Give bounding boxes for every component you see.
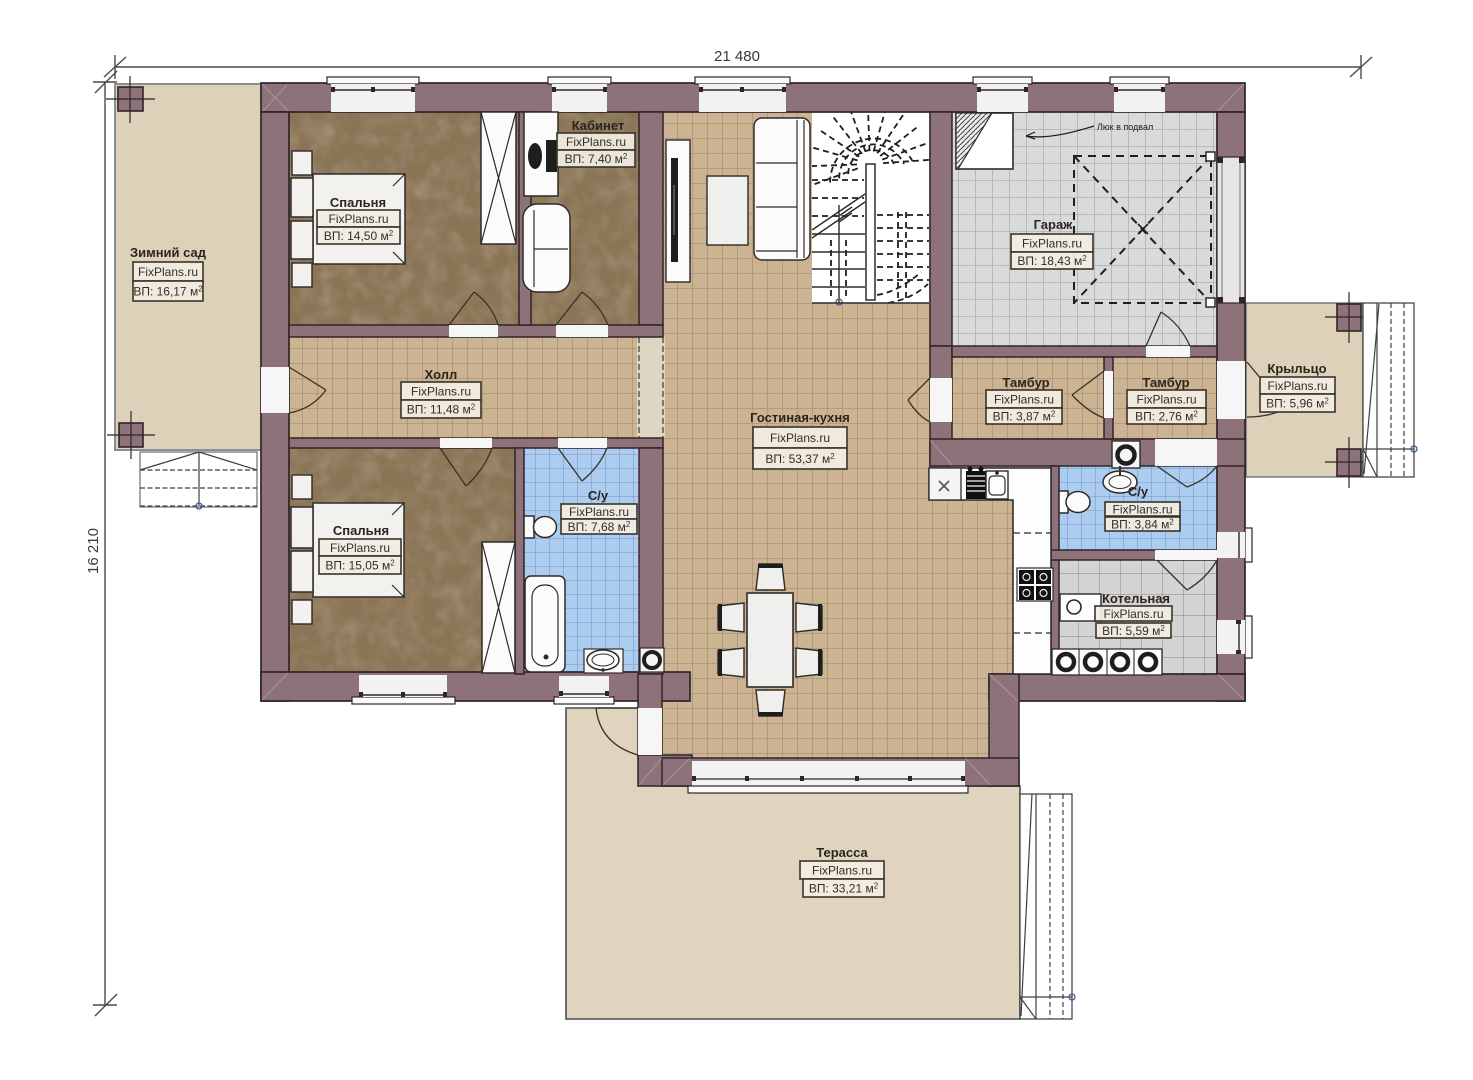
svg-text:ВП: 53,37 м2: ВП: 53,37 м2 [765, 452, 835, 466]
svg-text:ВП: 7,40 м2: ВП: 7,40 м2 [565, 152, 628, 166]
svg-text:ВП: 14,50 м2: ВП: 14,50 м2 [324, 229, 394, 243]
svg-text:Холл: Холл [425, 367, 458, 382]
svg-text:Гостиная-кухня: Гостиная-кухня [750, 410, 850, 425]
svg-text:ВП: 18,43 м2: ВП: 18,43 м2 [1017, 254, 1087, 268]
svg-text:ВП: 16,17 м2: ВП: 16,17 м2 [133, 285, 203, 299]
svg-text:Люк в подвал: Люк в подвал [1097, 122, 1153, 132]
svg-text:21 480: 21 480 [714, 48, 760, 65]
svg-text:FixPlans.ru: FixPlans.ru [1022, 237, 1082, 251]
svg-text:Спальня: Спальня [330, 195, 386, 210]
svg-text:ВП: 3,87 м2: ВП: 3,87 м2 [993, 410, 1056, 424]
svg-text:ВП: 5,96 м2: ВП: 5,96 м2 [1266, 397, 1329, 411]
svg-text:С/у: С/у [1128, 484, 1149, 499]
svg-text:ВП: 3,84 м2: ВП: 3,84 м2 [1111, 518, 1174, 532]
svg-text:Крыльцо: Крыльцо [1267, 361, 1326, 376]
svg-text:Котельная: Котельная [1102, 591, 1170, 606]
svg-text:FixPlans.ru: FixPlans.ru [1112, 503, 1172, 517]
svg-text:Терасса: Терасса [816, 845, 868, 860]
svg-text:FixPlans.ru: FixPlans.ru [994, 393, 1054, 407]
svg-text:FixPlans.ru: FixPlans.ru [1136, 393, 1196, 407]
svg-text:16 210: 16 210 [85, 528, 102, 574]
svg-text:Гараж: Гараж [1034, 217, 1074, 232]
svg-text:FixPlans.ru: FixPlans.ru [138, 265, 198, 279]
svg-text:Зимний сад: Зимний сад [130, 245, 207, 260]
svg-text:ВП: 33,21 м2: ВП: 33,21 м2 [809, 882, 879, 896]
svg-text:FixPlans.ru: FixPlans.ru [770, 431, 830, 445]
svg-text:Тамбур: Тамбур [1002, 375, 1049, 390]
svg-text:Спальня: Спальня [333, 523, 389, 538]
svg-text:FixPlans.ru: FixPlans.ru [1103, 607, 1163, 621]
svg-text:FixPlans.ru: FixPlans.ru [328, 212, 388, 226]
svg-text:С/у: С/у [588, 488, 609, 503]
svg-text:Кабинет: Кабинет [572, 118, 625, 133]
svg-text:Тамбур: Тамбур [1142, 375, 1189, 390]
svg-text:FixPlans.ru: FixPlans.ru [812, 864, 872, 878]
svg-text:FixPlans.ru: FixPlans.ru [569, 505, 629, 519]
svg-text:FixPlans.ru: FixPlans.ru [1267, 379, 1327, 393]
svg-text:ВП: 11,48 м2: ВП: 11,48 м2 [407, 403, 476, 417]
svg-text:ВП: 5,59 м2: ВП: 5,59 м2 [1102, 624, 1165, 638]
svg-text:ВП: 7,68 м2: ВП: 7,68 м2 [568, 520, 631, 534]
svg-text:FixPlans.ru: FixPlans.ru [566, 135, 626, 149]
svg-text:FixPlans.ru: FixPlans.ru [330, 541, 390, 555]
svg-text:ВП: 2,76 м2: ВП: 2,76 м2 [1135, 410, 1198, 424]
svg-text:ВП: 15,05 м2: ВП: 15,05 м2 [325, 559, 395, 573]
svg-text:FixPlans.ru: FixPlans.ru [411, 385, 471, 399]
